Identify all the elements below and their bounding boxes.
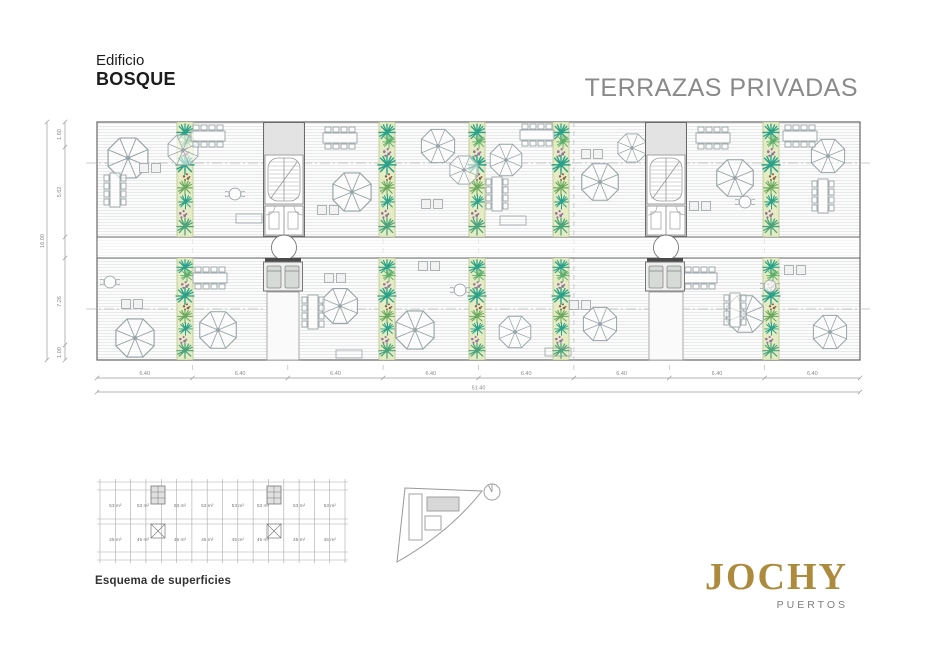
parasol-icon [450,156,478,184]
dim-label: 6.40 [139,371,150,377]
area-label: 45 m² [109,537,122,543]
parasol-icon [323,289,358,324]
area-label: 53 m² [201,503,214,509]
sheet-title: TERRAZAS PRIVADAS [585,74,858,103]
corridor-circle-1 [272,235,297,260]
building-label: Edificio [96,52,176,69]
dim-label: 6.40 [616,371,627,377]
dim-label: 1.00 [57,347,63,358]
parasol-icon [813,315,846,348]
parasol-icon [583,307,616,340]
dim-label: 6.40 [521,371,532,377]
drawing-sheet: Edificio BOSQUE TERRAZAS PRIVADAS [0,0,948,670]
parasol-icon [717,160,754,197]
dimension-labels-left: 1.60 5.62 7.26 1.00 16.00 [40,129,63,358]
schema-cores [151,486,281,538]
plant-strip [378,258,396,360]
central-corridor [97,237,860,258]
dimension-labels-bottom: 6.40 6.40 6.40 6.40 6.40 6.40 6.40 6.40 … [139,371,817,392]
area-label: 53 m² [324,503,337,509]
parasol-icon [499,316,531,348]
area-label: 45 m² [257,537,270,543]
building-name: BOSQUE [96,69,176,90]
site-building [425,516,441,530]
plant-strip [762,258,780,360]
dim-label: 7.26 [57,296,63,307]
logo-brand-text: JOCHY [705,558,848,596]
company-logo: JOCHY PUERTOS [705,558,848,611]
schema-caption: Esquema de superficies [95,575,231,587]
dim-label: 6.40 [712,371,723,377]
area-label: 45 m² [293,537,306,543]
plant-strip [552,122,570,237]
parasol-icon [582,164,619,201]
area-label: 53 m² [137,503,150,509]
stair-core-1 [264,123,305,237]
dim-label: 6.40 [330,371,341,377]
parasol-icon [421,129,454,162]
stair-core-2 [646,123,687,237]
area-label: 45 m² [324,537,337,543]
pergola-band-2 [649,292,683,360]
dim-label: 6.40 [235,371,246,377]
area-label: 45 m² [232,537,245,543]
plant-strip [552,258,570,360]
north-arrow-icon [484,484,500,500]
floor-plan: 1.60 5.62 7.26 1.00 16.00 6.40 6.40 6.40… [40,110,870,400]
parasol-icon [200,312,237,349]
parasol-icon [618,134,646,162]
area-label: 53 m² [109,503,122,509]
corridor-circle-2 [654,235,679,260]
dim-total-label: 16.00 [40,234,46,248]
pergola-band-1 [267,292,299,360]
logo-sub-text: PUERTOS [705,599,848,611]
plant-strip [468,258,486,360]
dim-label: 6.40 [807,371,818,377]
building-title: Edificio BOSQUE [96,52,176,90]
sun-loungers-2 [646,258,685,291]
area-label: 53 m² [293,503,306,509]
parasol-icon [396,311,434,349]
dim-label: 5.62 [57,187,63,198]
plant-strip [378,122,396,237]
sun-loungers-1 [264,258,303,291]
area-label: 53 m² [174,503,187,509]
parasol-icon [490,144,522,176]
parasol-icon [116,319,154,357]
dim-label: 1.60 [57,129,63,140]
schema-grid [97,479,348,563]
site-key [380,472,510,577]
plant-strip [176,258,194,360]
site-building [409,494,422,540]
plant-strip [762,122,780,237]
dim-label: 6.40 [425,371,436,377]
area-label: 53 m² [232,503,245,509]
dim-total-label: 51.40 [472,386,486,392]
area-label: 45 m² [137,537,150,543]
area-label: 53 m² [257,503,270,509]
surface-schema: 53 m² 53 m² 53 m² 53 m² 53 m² 53 m² 53 m… [85,470,360,575]
area-label: 45 m² [174,537,187,543]
dimensions-left [45,120,67,362]
site-building-highlighted [427,497,459,511]
area-label: 45 m² [201,537,214,543]
parasol-icon [811,139,844,172]
